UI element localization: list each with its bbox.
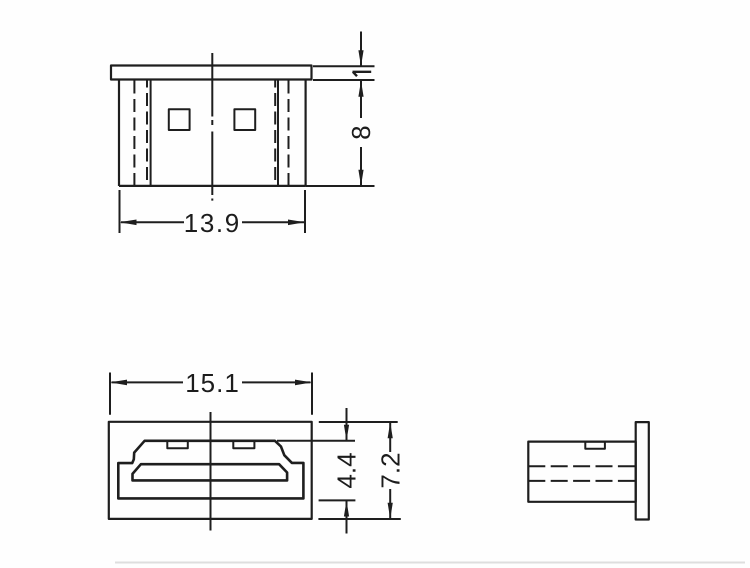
svg-text:7.2: 7.2 bbox=[375, 452, 405, 488]
svg-text:4.4: 4.4 bbox=[332, 452, 362, 488]
svg-text:13.9: 13.9 bbox=[184, 208, 241, 238]
svg-text:15.1: 15.1 bbox=[185, 368, 240, 398]
svg-text:8: 8 bbox=[346, 125, 376, 139]
